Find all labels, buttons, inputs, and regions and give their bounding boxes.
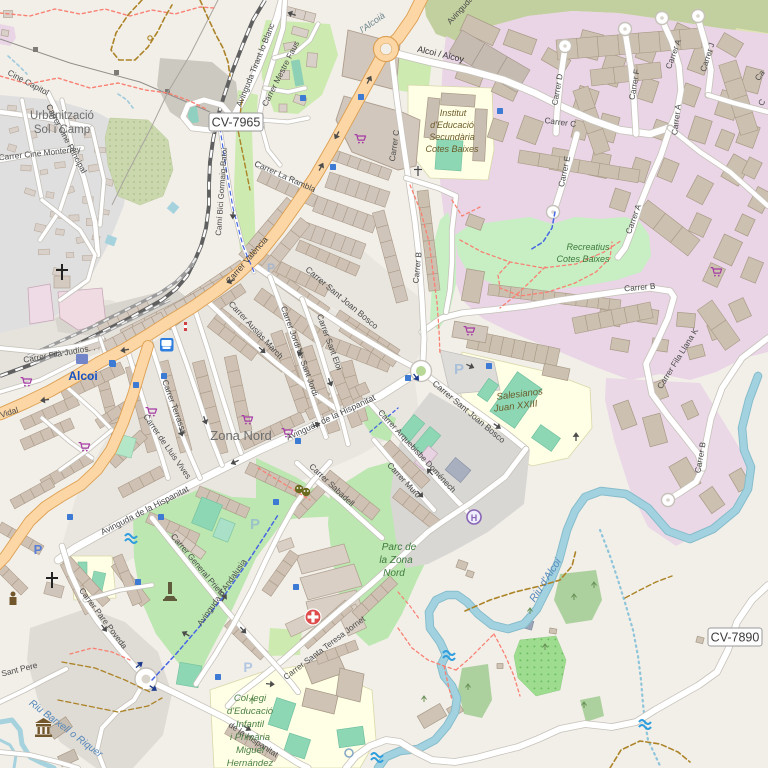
svg-text:Secundària: Secundària [429,132,475,142]
svg-text:P: P [454,361,464,378]
svg-text:Recreatius: Recreatius [566,242,610,252]
svg-text:Institut: Institut [440,108,467,118]
svg-text:CV-7965: CV-7965 [212,116,261,130]
svg-text:Urbanització: Urbanització [30,110,94,122]
svg-text:Cotes Baixes: Cotes Baixes [556,254,610,264]
svg-text:i Primària: i Primària [230,732,270,743]
svg-text:Zona Nord: Zona Nord [210,428,271,443]
svg-text:Parc de: Parc de [382,542,417,553]
svg-text:Nord: Nord [383,568,405,579]
svg-text:H: H [471,513,478,523]
svg-text:d'Educació: d'Educació [430,120,474,130]
svg-text:P: P [34,542,43,557]
svg-text:Alcoi: Alcoi [68,369,97,383]
svg-text:la Zona: la Zona [379,555,413,566]
svg-text:Infantil: Infantil [236,719,265,730]
svg-text:Hernández: Hernández [227,758,274,768]
svg-text:CV-7890: CV-7890 [711,631,760,645]
svg-text:P: P [243,659,252,675]
svg-text:Col·legi: Col·legi [234,693,267,704]
svg-text:d'Educació: d'Educació [227,706,274,717]
svg-text:P: P [267,261,275,275]
svg-text:Cotes Baixes: Cotes Baixes [425,144,479,154]
svg-text:Miguel: Miguel [236,745,265,756]
svg-text:P: P [250,516,260,533]
svg-text:Sol i Camp: Sol i Camp [34,124,90,136]
